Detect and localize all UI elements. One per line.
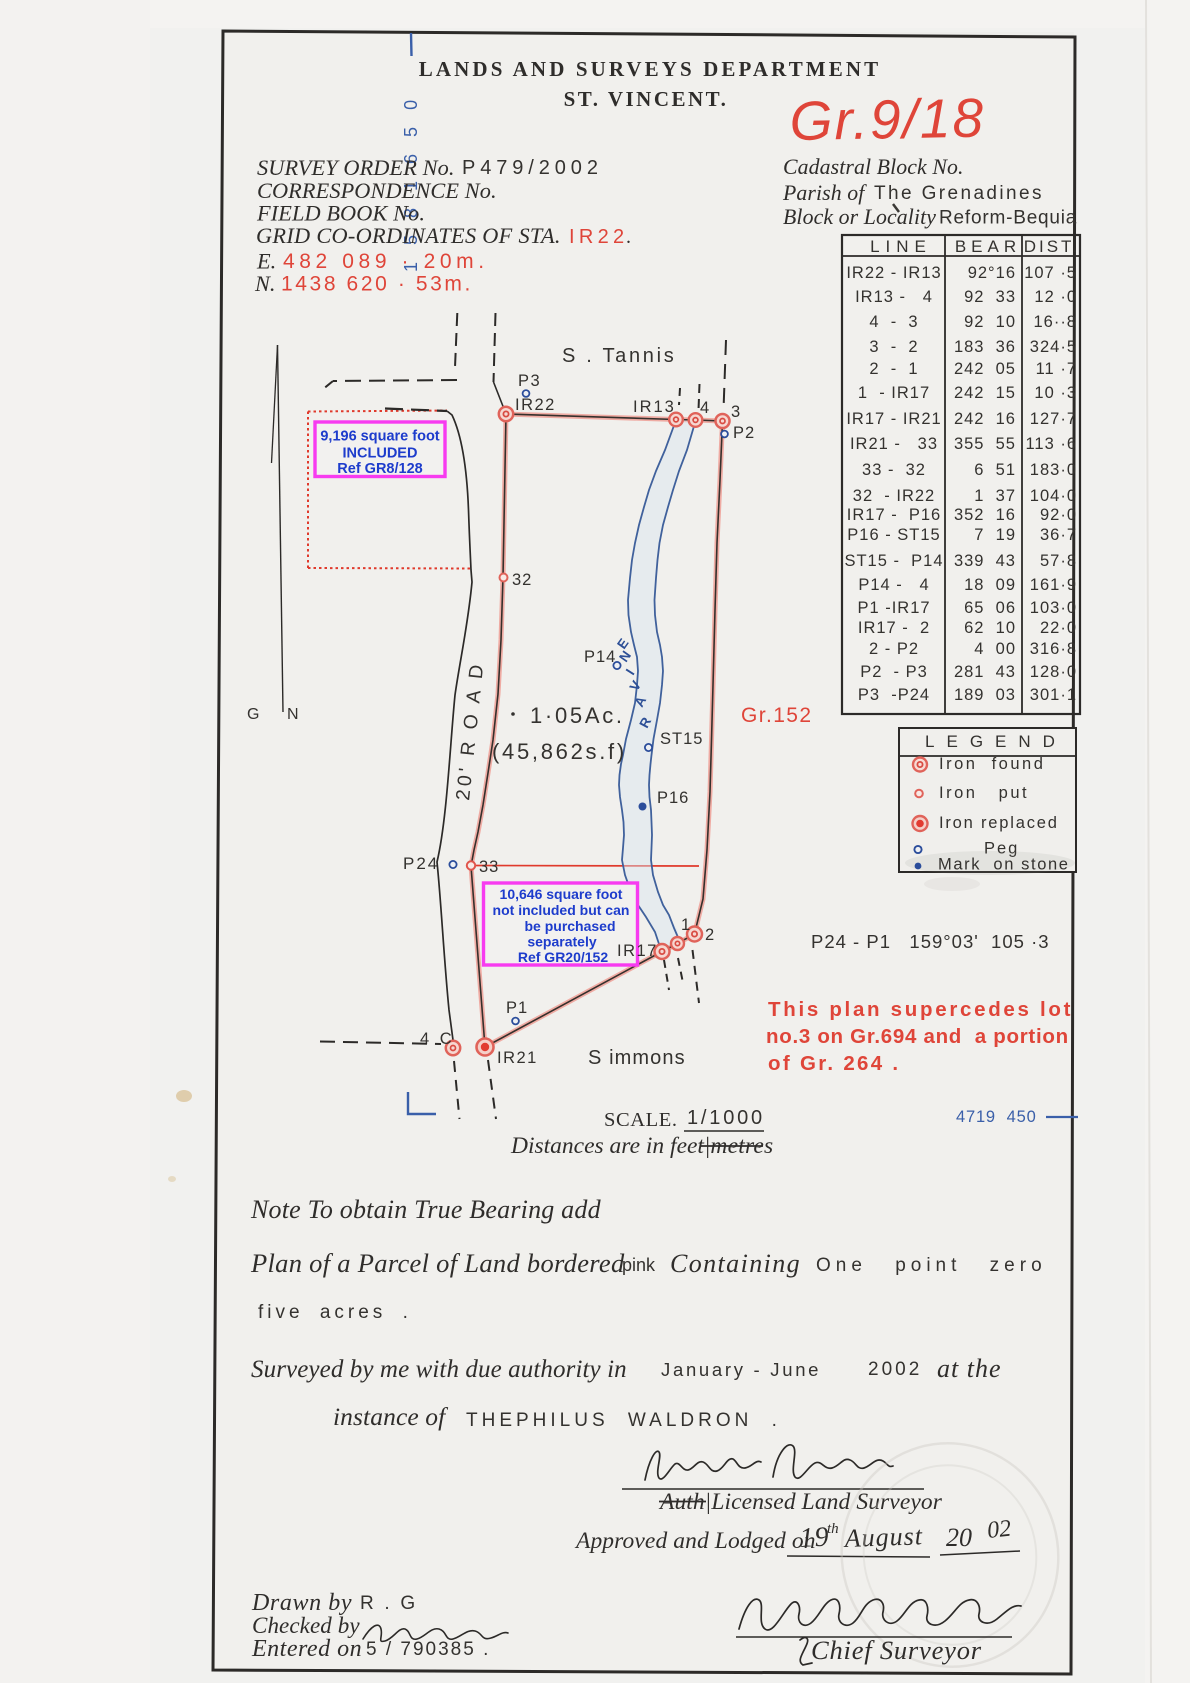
svg-text:482 089 · 20m.: 482 089 · 20m. — [283, 250, 489, 273]
svg-text:One point zero: One point zero — [816, 1255, 1047, 1276]
svg-text:Iron found: Iron found — [939, 755, 1045, 773]
svg-text:E.: E. — [256, 249, 276, 274]
svg-text:LEGEND: LEGEND — [925, 732, 1067, 751]
svg-text:02: 02 — [986, 1516, 1013, 1544]
svg-text:SURVEY ORDER No.: SURVEY ORDER No. — [257, 155, 455, 180]
svg-text:S immons: S immons — [588, 1047, 686, 1069]
svg-text:Gr.9/18: Gr.9/18 — [789, 87, 985, 152]
svg-text:Ref GR20/152: Ref GR20/152 — [518, 949, 608, 965]
svg-text:9,196 square foot: 9,196 square foot — [320, 429, 439, 445]
svg-text:FIELD BOOK No.: FIELD BOOK No. — [256, 201, 425, 226]
svg-text:IR17 - IR21: IR17 - IR21 — [846, 410, 941, 428]
svg-text:This plan supercedes lot: This plan supercedes lot — [768, 998, 1073, 1021]
svg-text:4 00: 4 00 — [974, 640, 1016, 658]
svg-text:ST15: ST15 — [660, 730, 703, 748]
svg-text:36·7: 36·7 — [1040, 526, 1077, 544]
svg-text:instance of: instance of — [333, 1402, 449, 1431]
svg-text:1 - IR17: 1 - IR17 — [858, 384, 930, 402]
svg-text:Chief Surveyor: Chief Surveyor — [811, 1635, 982, 1665]
svg-text:pink: pink — [622, 1255, 656, 1275]
svg-text:33 - 32: 33 - 32 — [862, 461, 926, 479]
svg-text:N.: N. — [254, 271, 275, 296]
svg-text:3: 3 — [731, 403, 740, 421]
svg-text:IR17: IR17 — [617, 942, 658, 960]
svg-text:12 ·0: 12 ·0 — [1034, 288, 1077, 306]
svg-text:4: 4 — [700, 399, 709, 417]
svg-text:62 10: 62 10 — [964, 619, 1016, 637]
svg-text:16··8: 16··8 — [1033, 313, 1077, 331]
svg-text:Checked by: Checked by — [252, 1613, 360, 1638]
svg-text:5 / 790385 .: 5 / 790385 . — [366, 1639, 490, 1660]
svg-text:not included but can: not included but can — [493, 902, 630, 918]
svg-text:ST. VINCENT.: ST. VINCENT. — [564, 87, 729, 111]
svg-text:P24 - P1 159°03' 105 ·3: P24 - P1 159°03' 105 ·3 — [811, 931, 1050, 952]
svg-text:Parish of: Parish of — [782, 181, 867, 205]
svg-text:Mark on stone: Mark on stone — [938, 856, 1070, 874]
svg-text:IR13: IR13 — [633, 398, 676, 416]
svg-text:Reform-Bequia: Reform-Bequia — [939, 208, 1077, 229]
svg-text:324·5: 324·5 — [1030, 338, 1077, 356]
svg-text:4 C: 4 C — [420, 1030, 455, 1048]
svg-text:The Grenadines: The Grenadines — [874, 183, 1044, 204]
svg-text:32 - IR22: 32 - IR22 — [853, 487, 935, 505]
svg-text:THEPHILUS WALDRON .: THEPHILUS WALDRON . — [466, 1410, 781, 1431]
svg-text:316·8: 316·8 — [1030, 640, 1077, 658]
svg-text:SCALE.: SCALE. — [604, 1109, 678, 1131]
svg-text:DIST.: DIST. — [1024, 237, 1081, 256]
svg-text:20: 20 — [946, 1523, 972, 1552]
svg-text:189 03: 189 03 — [954, 686, 1016, 704]
svg-text:Block or Locality: Block or Locality — [783, 205, 936, 229]
svg-text:P1 -IR17: P1 -IR17 — [857, 599, 930, 617]
svg-text:Surveyed by me with due author: Surveyed by me with due authority in — [251, 1356, 627, 1383]
svg-text:92 10: 92 10 — [964, 313, 1016, 331]
svg-text:P24: P24 — [403, 854, 439, 873]
svg-text:.: . — [626, 226, 631, 248]
svg-text:be purchased: be purchased — [524, 918, 615, 934]
svg-text:65 06: 65 06 — [964, 599, 1016, 617]
svg-text:2 - P2: 2 - P2 — [869, 640, 919, 658]
svg-text:IR22: IR22 — [569, 226, 628, 248]
svg-text:4719 450: 4719 450 — [956, 1108, 1037, 1126]
svg-text:P16: P16 — [657, 789, 689, 807]
svg-text:N: N — [287, 706, 299, 723]
svg-text:IR21 - 33: IR21 - 33 — [850, 435, 938, 453]
svg-text:Ref GR8/128: Ref GR8/128 — [337, 461, 422, 477]
svg-text:1: 1 — [681, 916, 690, 934]
svg-text:no.3 on Gr.694 and a portion: no.3 on Gr.694 and a portion — [766, 1025, 1069, 1048]
svg-text:IR17 - 2: IR17 - 2 — [858, 619, 930, 637]
svg-text:242 15: 242 15 — [954, 384, 1016, 402]
svg-text:107 ·5: 107 ·5 — [1024, 264, 1077, 282]
svg-text:1438 620 · 53m.: 1438 620 · 53m. — [281, 273, 473, 296]
svg-text:P1: P1 — [506, 999, 528, 1017]
svg-text:1·05Ac.: 1·05Ac. — [530, 703, 625, 728]
svg-text:P14: P14 — [584, 648, 616, 666]
svg-text:LANDS AND SURVEYS DEPARTMENT: LANDS AND SURVEYS DEPARTMENT — [419, 57, 881, 81]
svg-text:IR13 - 4: IR13 - 4 — [855, 288, 933, 306]
svg-text:92°16: 92°16 — [968, 264, 1016, 282]
svg-text:five acres .: five acres . — [258, 1302, 412, 1323]
svg-text:(45,862s.f): (45,862s.f) — [492, 739, 627, 764]
svg-text:Approved and Lodged on: Approved and Lodged on — [574, 1528, 816, 1554]
svg-text:1/1000: 1/1000 — [687, 1107, 765, 1129]
svg-text:22·0: 22·0 — [1040, 619, 1077, 637]
svg-text:S . Tannis: S . Tannis — [562, 345, 676, 367]
svg-text:103·0: 103·0 — [1030, 599, 1077, 617]
svg-text:57·8: 57·8 — [1040, 552, 1077, 570]
svg-text:P14 - 4: P14 - 4 — [858, 576, 929, 594]
svg-text:ST15 - P14: ST15 - P14 — [844, 552, 943, 570]
svg-text:R . G: R . G — [360, 1593, 418, 1614]
svg-text:LINE: LINE — [870, 237, 932, 256]
svg-text:at the: at the — [937, 1354, 1002, 1383]
svg-text:2002: 2002 — [868, 1359, 922, 1380]
svg-text:92 33: 92 33 — [964, 288, 1016, 306]
svg-text:113 ·6: 113 ·6 — [1025, 435, 1077, 453]
svg-text:7 19: 7 19 — [974, 526, 1016, 544]
svg-text:33: 33 — [479, 858, 499, 876]
svg-text:Iron replaced: Iron replaced — [939, 814, 1059, 832]
svg-text:10 ·3: 10 ·3 — [1034, 384, 1077, 402]
svg-text:BEAR: BEAR — [955, 237, 1021, 256]
svg-text:1 37: 1 37 — [974, 487, 1016, 505]
svg-text:339 43: 339 43 — [954, 552, 1016, 570]
svg-text:Plan of a Parcel of Land borde: Plan of a Parcel of Land bordered — [250, 1248, 625, 1278]
svg-text:Cadastral Block No.: Cadastral Block No. — [783, 155, 964, 179]
svg-text:CORRESPONDENCE No.: CORRESPONDENCE No. — [257, 178, 497, 203]
svg-text:18 09: 18 09 — [964, 576, 1016, 594]
svg-text:161·9: 161·9 — [1030, 576, 1077, 594]
svg-text:Note To obtain True Bearing ad: Note To obtain True Bearing add — [250, 1195, 602, 1224]
svg-text:IR22 - IR13: IR22 - IR13 — [846, 264, 941, 282]
svg-text:242 16: 242 16 — [954, 410, 1016, 428]
svg-text:IR21: IR21 — [497, 1049, 538, 1067]
svg-text:INCLUDED: INCLUDED — [343, 446, 418, 462]
svg-text:242 05: 242 05 — [954, 360, 1016, 378]
svg-text:2 - 1: 2 - 1 — [869, 360, 918, 378]
svg-text:10,646 square foot: 10,646 square foot — [500, 886, 623, 902]
svg-text:P3: P3 — [518, 372, 541, 390]
svg-text:Iron put: Iron put — [939, 784, 1029, 802]
svg-text:August: August — [842, 1521, 923, 1553]
svg-text:Entered on: Entered on — [251, 1636, 362, 1662]
svg-text:GRID CO-ORDINATES OF STA.: GRID CO-ORDINATES OF STA. — [256, 223, 561, 248]
svg-text:6 51: 6 51 — [974, 461, 1016, 479]
svg-text:separately: separately — [527, 934, 596, 950]
svg-text:104·0: 104·0 — [1030, 487, 1077, 505]
svg-text:355 55: 355 55 — [954, 435, 1016, 453]
svg-text:281 43: 281 43 — [954, 663, 1016, 681]
svg-text:19: 19 — [799, 1521, 831, 1554]
svg-text:127·7: 127·7 — [1030, 410, 1077, 428]
svg-text:G: G — [247, 706, 259, 723]
svg-text:3 - 2: 3 - 2 — [869, 338, 918, 356]
svg-text:4 - 3: 4 - 3 — [869, 313, 918, 331]
svg-text:183 36: 183 36 — [954, 338, 1016, 356]
svg-text:P2: P2 — [733, 424, 755, 442]
svg-text:352 16: 352 16 — [954, 506, 1016, 524]
svg-text:January - June: January - June — [661, 1359, 821, 1380]
svg-text:Containing: Containing — [670, 1249, 801, 1278]
svg-text:P3 -P24: P3 -P24 — [858, 686, 930, 704]
svg-text:IR22: IR22 — [515, 396, 556, 414]
svg-text:Gr.152: Gr.152 — [741, 704, 812, 727]
svg-text:IR17 - P16: IR17 - P16 — [847, 506, 941, 524]
svg-text:92·0: 92·0 — [1040, 506, 1077, 524]
svg-text:P479/2002: P479/2002 — [462, 157, 603, 179]
svg-text:32: 32 — [512, 571, 532, 589]
svg-text:th: th — [827, 1521, 839, 1537]
svg-text:11 ·7: 11 ·7 — [1036, 360, 1077, 378]
svg-text:P16 - ST15: P16 - ST15 — [847, 526, 940, 544]
svg-text:128·0: 128·0 — [1030, 663, 1077, 681]
svg-text:183·0: 183·0 — [1030, 461, 1077, 479]
svg-text:of Gr. 264 .: of Gr. 264 . — [768, 1052, 900, 1075]
svg-text:P2 - P3: P2 - P3 — [860, 663, 928, 681]
svg-text:2: 2 — [705, 926, 714, 944]
svg-text:301·1: 301·1 — [1030, 686, 1077, 704]
